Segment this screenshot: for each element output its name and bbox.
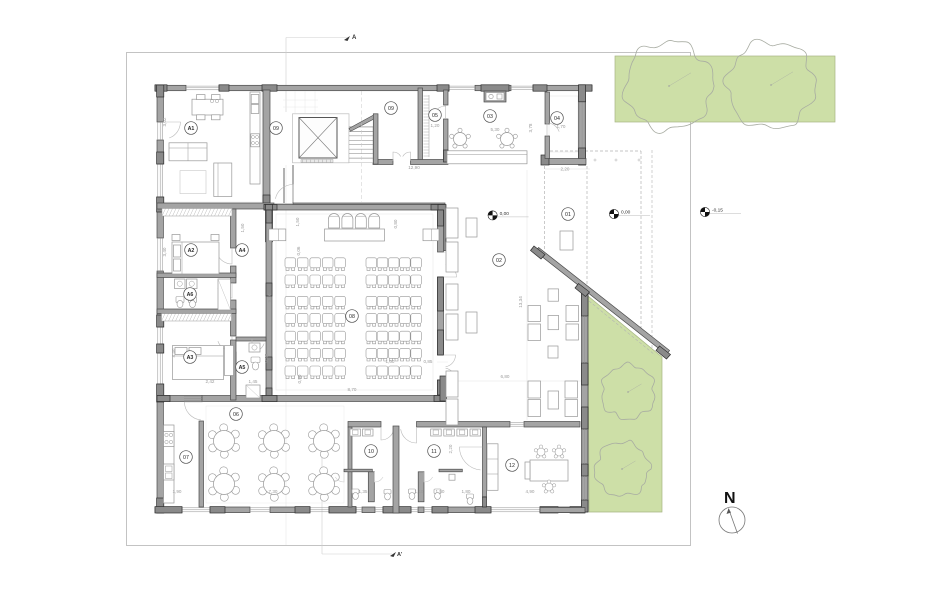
- svg-text:11: 11: [431, 449, 437, 455]
- svg-text:2,42: 2,42: [206, 379, 215, 384]
- svg-text:05: 05: [432, 113, 438, 119]
- svg-text:0,00: 0,00: [500, 211, 510, 217]
- svg-text:N: N: [724, 490, 736, 507]
- svg-text:A4: A4: [239, 248, 246, 254]
- svg-text:9,30: 9,30: [267, 293, 272, 302]
- svg-text:5,30: 5,30: [491, 127, 500, 132]
- svg-text:1,20: 1,20: [431, 123, 440, 128]
- svg-text:2,20: 2,20: [448, 444, 453, 453]
- svg-text:A6: A6: [187, 292, 194, 298]
- svg-text:0,80: 0,80: [393, 219, 398, 228]
- svg-text:4,40: 4,40: [171, 348, 176, 357]
- svg-text:3,78: 3,78: [528, 123, 533, 132]
- svg-text:7,30: 7,30: [269, 489, 278, 494]
- svg-text:8,70: 8,70: [348, 387, 357, 392]
- svg-text:08: 08: [349, 314, 355, 320]
- svg-text:1,80: 1,80: [462, 489, 471, 494]
- svg-text:13,34: 13,34: [518, 296, 523, 308]
- svg-text:A: A: [352, 35, 357, 41]
- svg-text:3,02: 3,02: [162, 117, 167, 126]
- svg-text:3,40: 3,40: [162, 247, 167, 256]
- svg-text:1,10: 1,10: [415, 489, 424, 494]
- svg-text:1,90: 1,90: [173, 489, 182, 494]
- svg-text:02: 02: [496, 258, 502, 264]
- svg-text:1,45: 1,45: [249, 379, 258, 384]
- svg-text:1,50: 1,50: [240, 223, 245, 232]
- svg-text:2,20: 2,20: [561, 167, 570, 172]
- svg-text:A1: A1: [188, 126, 195, 132]
- svg-text:1,70: 1,70: [557, 124, 566, 129]
- svg-text:01: 01: [565, 212, 571, 218]
- svg-text:0,85: 0,85: [264, 353, 269, 362]
- svg-text:09: 09: [273, 126, 279, 132]
- svg-text:1,50: 1,50: [295, 217, 300, 226]
- svg-text:1,00: 1,00: [386, 359, 395, 364]
- svg-text:0,85: 0,85: [424, 359, 433, 364]
- svg-text:12: 12: [509, 463, 515, 469]
- svg-text:A': A': [397, 552, 403, 558]
- svg-text:A5: A5: [239, 365, 246, 371]
- svg-text:04: 04: [554, 116, 560, 122]
- svg-text:12,90: 12,90: [408, 165, 420, 170]
- svg-text:6,80: 6,80: [501, 374, 510, 379]
- svg-text:1,50: 1,50: [436, 489, 445, 494]
- svg-text:1,35: 1,35: [359, 489, 368, 494]
- svg-text:09: 09: [388, 106, 394, 112]
- svg-text:0,06: 0,06: [296, 246, 301, 255]
- svg-text:06: 06: [233, 412, 239, 418]
- svg-text:-0,15: -0,15: [712, 207, 723, 213]
- svg-text:0,90: 0,90: [297, 374, 302, 383]
- svg-text:A3: A3: [187, 355, 194, 361]
- svg-text:0,00: 0,00: [621, 209, 631, 215]
- svg-text:07: 07: [183, 455, 189, 461]
- svg-text:10: 10: [368, 449, 374, 455]
- svg-text:A2: A2: [188, 248, 195, 254]
- svg-text:4,90: 4,90: [526, 489, 535, 494]
- svg-text:03: 03: [487, 114, 493, 120]
